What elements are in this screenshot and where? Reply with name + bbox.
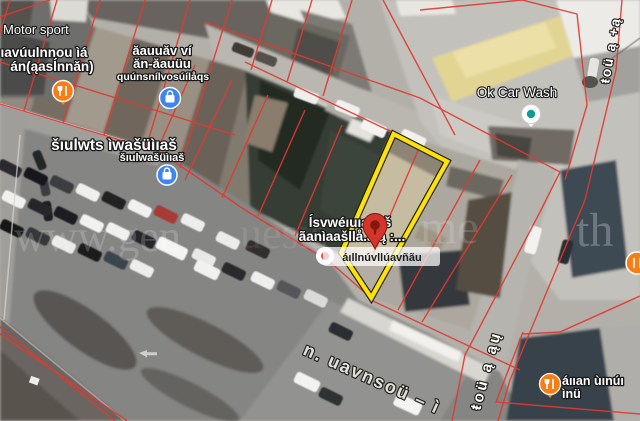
svg-text:šıulwašüìıaš: šıulwašüìıaš: [120, 152, 185, 164]
svg-text:ăn-ăauüu: ăn-ăauüu: [133, 56, 191, 71]
svg-text:th: th: [576, 204, 613, 257]
svg-text:ìnü: ìnü: [561, 387, 581, 401]
svg-text:Ok Car Wash: Ok Car Wash: [477, 85, 558, 100]
svg-text:ıavúulnnou ìá: ıavúulnnou ìá: [0, 45, 87, 60]
svg-text:quúnsnílvosúílåqs: quúnsnílvosúílåqs: [117, 71, 209, 83]
svg-text:www.gen: www.gen: [14, 212, 181, 261]
svg-text:áııan ùınúı: áııan ùınúı: [562, 374, 624, 388]
svg-text:me: me: [420, 201, 479, 254]
svg-text:ãanìaašllå.a ą :...: ãanìaašllå.a ą :...: [299, 229, 406, 244]
svg-text:Motor sport: Motor sport: [3, 22, 69, 37]
svg-text:áıllnúvllúavñãu: áıllnúvllúavñãu: [342, 252, 421, 264]
svg-text:án(ąasĺnnăn): án(ąasĺnnăn): [10, 59, 93, 74]
